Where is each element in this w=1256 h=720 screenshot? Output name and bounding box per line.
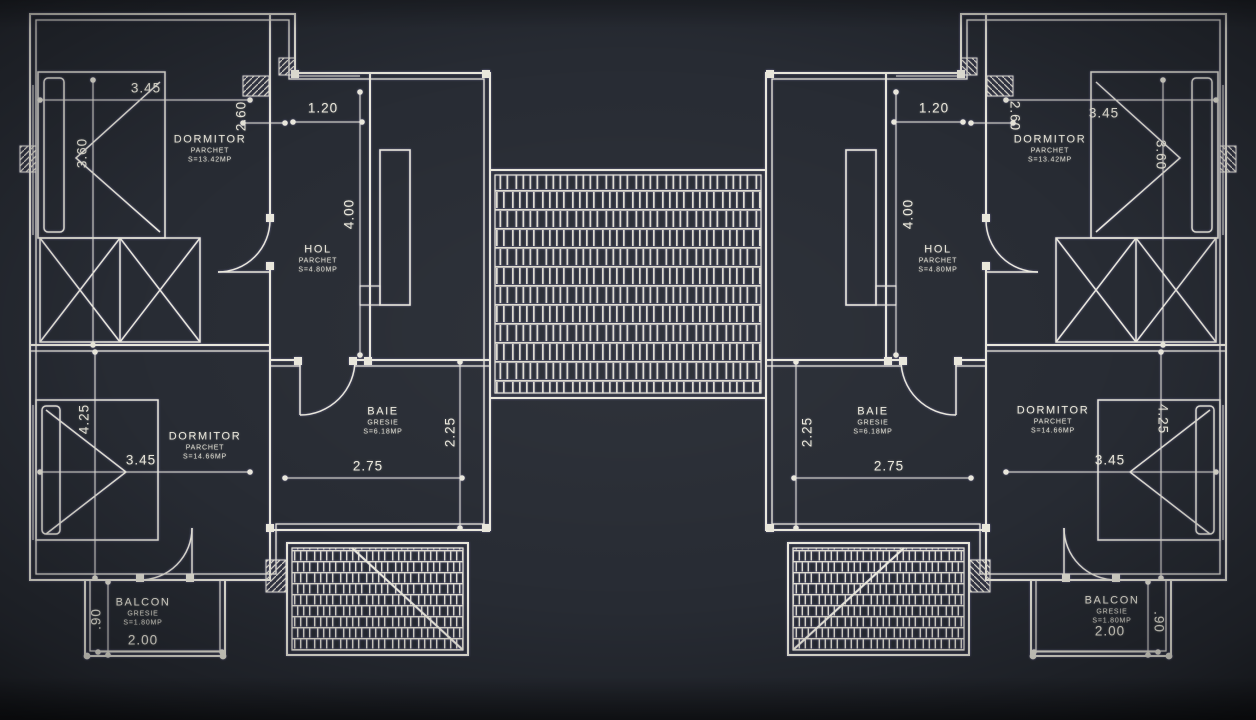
dim-room-top-depth-right: 3.60: [1154, 140, 1169, 170]
room-finish: GRESIE: [127, 610, 158, 619]
room-label-balcon-left: BALCON GRESIE S=1.80MP: [116, 596, 171, 627]
room-label-dormitor-top-left: DORMITOR PARCHET S=13.42MP: [174, 133, 246, 164]
room-area: S=14.66MP: [1031, 427, 1075, 436]
room-name: HOL: [304, 243, 331, 257]
dim-room-bottom-depth-right: 4.25: [1156, 404, 1171, 434]
unit-right: [766, 14, 1236, 659]
room-label-baie-left: BAIE GRESIE S=6.18MP: [363, 405, 402, 436]
floor-plan-photo: DORMITOR PARCHET S=13.42MP HOL PARCHET S…: [0, 0, 1256, 720]
dim-hall-recess-left: 2.60: [234, 101, 249, 131]
dim-balcony-depth-right: .90: [1152, 611, 1167, 633]
dim-entry-window-right: 1.20: [919, 101, 949, 116]
room-area: S=1.80MP: [123, 619, 162, 628]
room-label-hol-right: HOL PARCHET S=4.80MP: [918, 243, 957, 274]
dim-bath-depth-right: 2.25: [800, 417, 815, 447]
room-name: BALCON: [116, 596, 171, 610]
dim-bath-width-right: 2.75: [874, 459, 904, 474]
dim-room-top-width-right: 3.45: [1089, 106, 1119, 121]
room-area: S=13.42MP: [1028, 156, 1072, 165]
room-area: S=6.18MP: [363, 428, 402, 437]
dim-balcony-width-left: 2.00: [128, 633, 158, 648]
room-finish: PARCHET: [1031, 147, 1070, 156]
room-finish: PARCHET: [186, 444, 225, 453]
room-finish: GRESIE: [367, 419, 398, 428]
dim-bath-depth-left: 2.25: [443, 417, 458, 447]
bridge-hatch: [490, 170, 766, 398]
room-finish: PARCHET: [919, 257, 958, 266]
dim-bath-width-left: 2.75: [353, 459, 383, 474]
room-area: S=4.80MP: [918, 266, 957, 275]
dim-hall-depth-left: 4.00: [342, 199, 357, 229]
unit-left: [20, 14, 490, 659]
room-name: BAIE: [857, 405, 888, 419]
dim-hall-recess-right: 2.60: [1008, 101, 1023, 131]
room-label-dormitor-top-right: DORMITOR PARCHET S=13.42MP: [1014, 133, 1086, 164]
room-name: DORMITOR: [174, 133, 246, 147]
room-area: S=6.18MP: [853, 428, 892, 437]
dim-room-bottom-depth-left: 4.25: [77, 404, 92, 434]
room-name: DORMITOR: [1017, 404, 1089, 418]
dim-room-bottom-width-left: 3.45: [126, 453, 156, 468]
dim-room-top-width-left: 3.45: [131, 81, 161, 96]
dim-hall-depth-right: 4.00: [901, 199, 916, 229]
room-area: S=13.42MP: [188, 156, 232, 165]
dim-balcony-width-right: 2.00: [1095, 624, 1125, 639]
room-finish: PARCHET: [299, 257, 338, 266]
dim-balcony-depth-left: .90: [89, 608, 104, 630]
room-name: BAIE: [367, 405, 398, 419]
room-name: HOL: [924, 243, 951, 257]
room-name: BALCON: [1085, 594, 1140, 608]
dim-entry-window-left: 1.20: [308, 101, 338, 116]
dim-room-bottom-width-right: 3.45: [1095, 453, 1125, 468]
room-label-dormitor-bottom-right: DORMITOR PARCHET S=14.66MP: [1017, 404, 1089, 435]
dim-room-top-depth-left: 3.60: [75, 138, 90, 168]
room-name: DORMITOR: [1014, 133, 1086, 147]
room-label-baie-right: BAIE GRESIE S=6.18MP: [853, 405, 892, 436]
room-label-hol-left: HOL PARCHET S=4.80MP: [298, 243, 337, 274]
room-finish: GRESIE: [1096, 608, 1127, 617]
room-finish: GRESIE: [857, 419, 888, 428]
plan-linework: [0, 0, 1256, 720]
room-name: DORMITOR: [169, 430, 241, 444]
room-label-dormitor-bottom-left: DORMITOR PARCHET S=14.66MP: [169, 430, 241, 461]
room-area: S=14.66MP: [183, 453, 227, 462]
room-label-balcon-right: BALCON GRESIE S=1.80MP: [1085, 594, 1140, 625]
room-finish: PARCHET: [1034, 418, 1073, 427]
room-finish: PARCHET: [191, 147, 230, 156]
room-area: S=4.80MP: [298, 266, 337, 275]
